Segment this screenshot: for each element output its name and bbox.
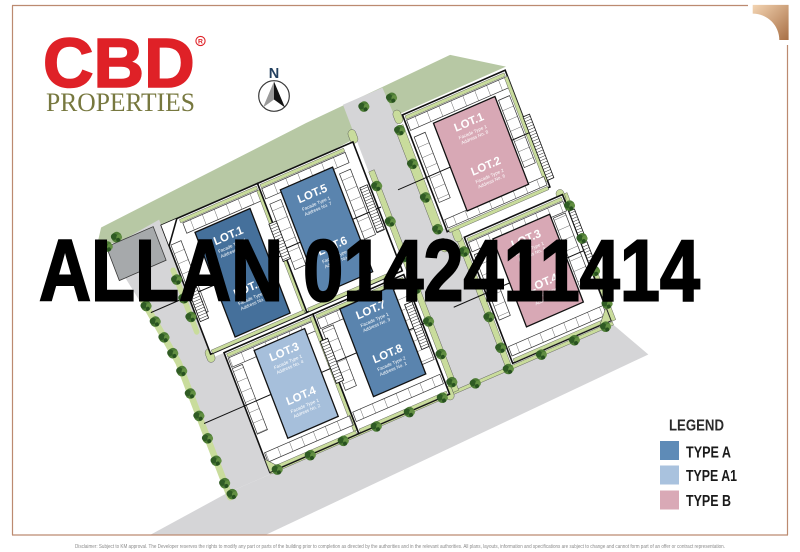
svg-text:Disclaimer: Subject to KM appr: Disclaimer: Subject to KM approval. The … [75, 544, 725, 550]
svg-text:TYPE A: TYPE A [686, 445, 731, 462]
svg-text:PROPERTIES: PROPERTIES [46, 87, 195, 117]
svg-text:TYPE A1: TYPE A1 [686, 468, 737, 485]
svg-text:LEGEND: LEGEND [669, 418, 724, 435]
svg-text:R: R [198, 39, 203, 46]
svg-text:TYPE B: TYPE B [686, 493, 731, 510]
svg-text:N: N [269, 66, 279, 82]
svg-text:ALLAN 0142411414: ALLAN 0142411414 [39, 223, 700, 320]
